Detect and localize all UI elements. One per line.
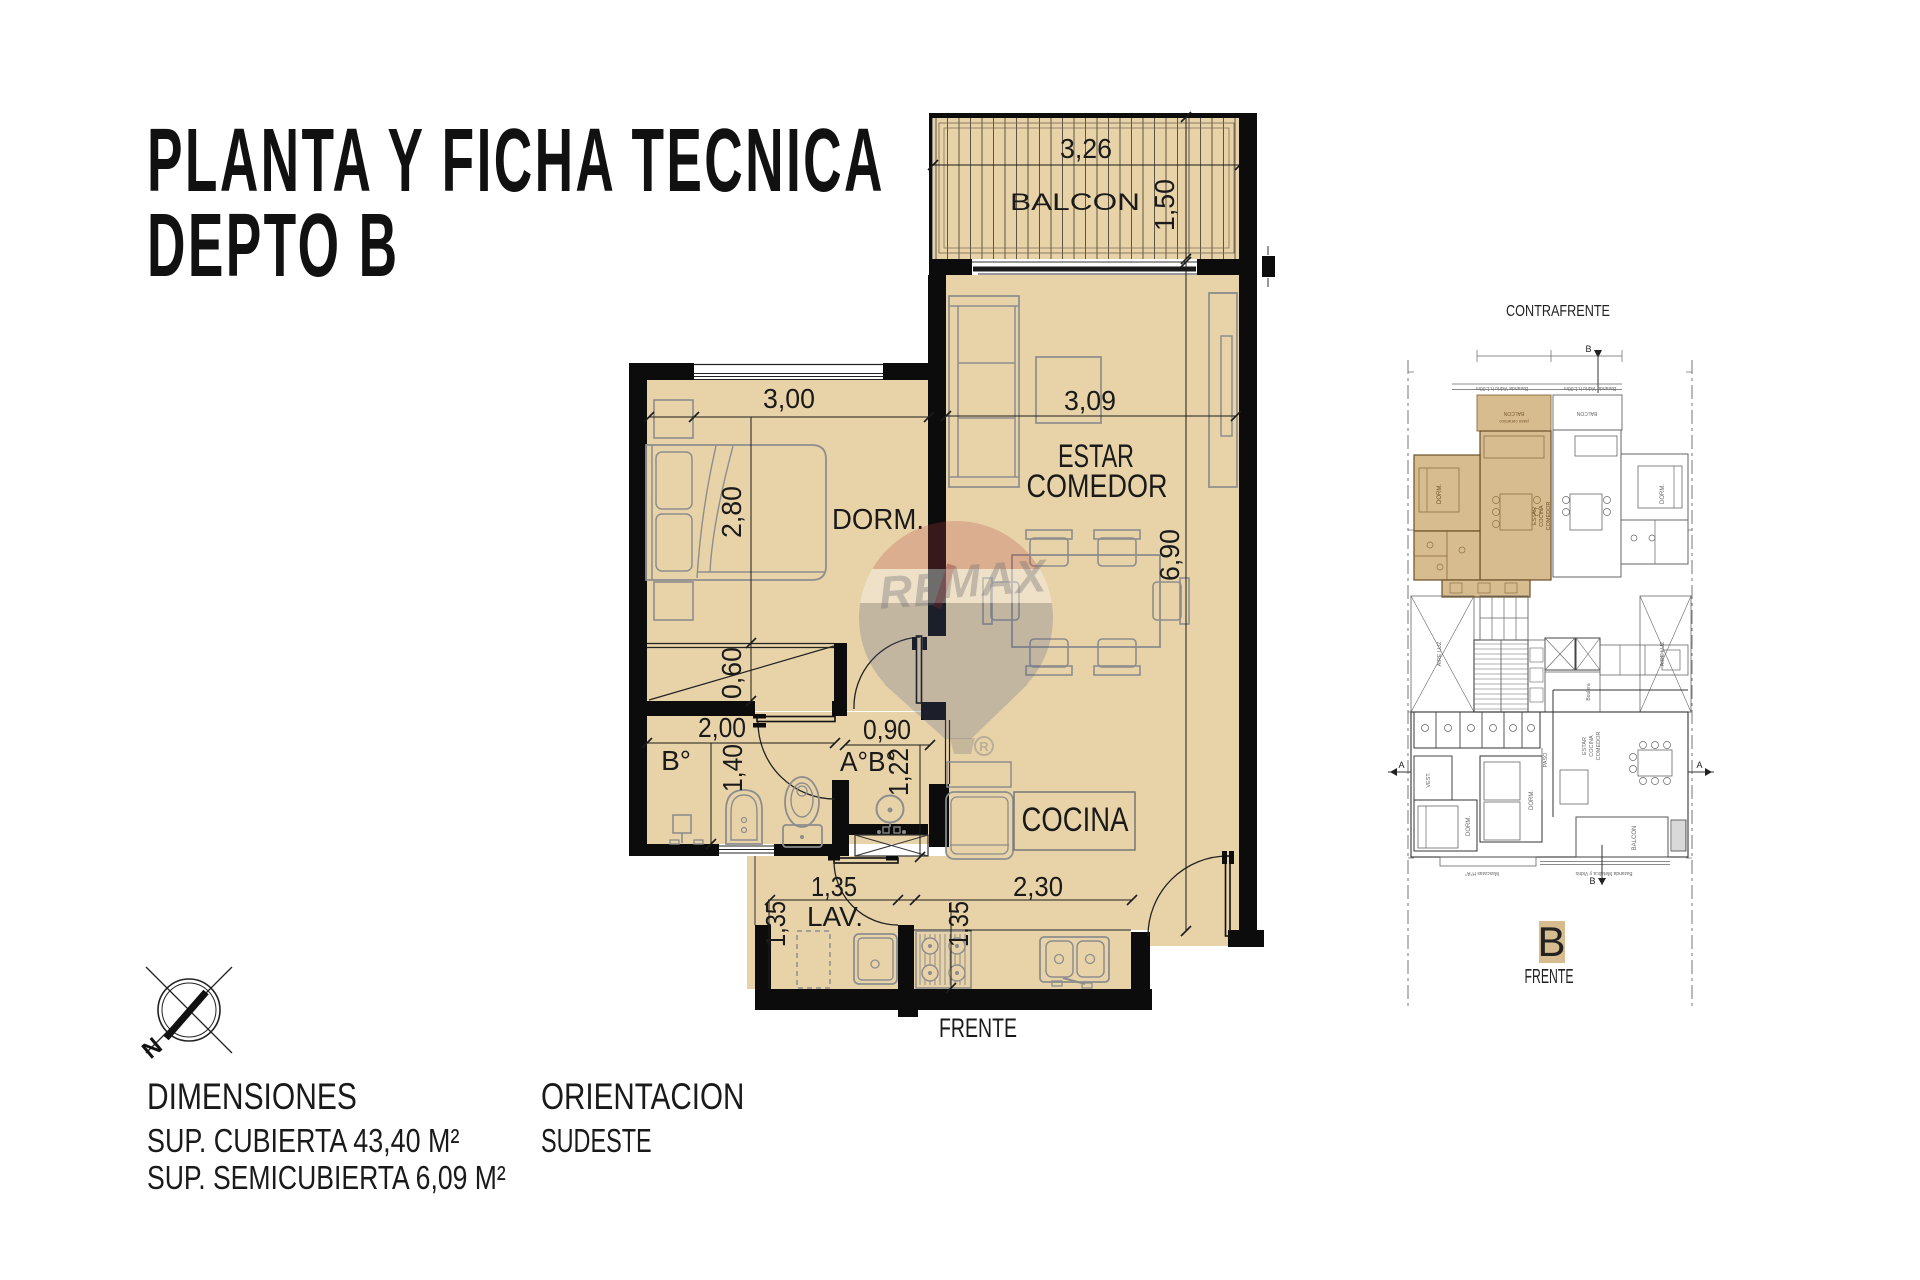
svg-text:N: N [137,1032,168,1064]
svg-text:Boulera: Boulera [1586,683,1592,700]
svg-text:B: B [1537,918,1566,965]
svg-text:DORM.: DORM. [1660,484,1666,504]
svg-text:paso ceramico: paso ceramico [1499,419,1529,424]
svg-text:1,35: 1,35 [760,901,791,947]
svg-text:Baranda Vidrio h.1.00m: Baranda Vidrio h.1.00m [1564,385,1616,391]
svg-text:FRENTE: FRENTE [1525,966,1574,988]
svg-text:VEST.: VEST. [1426,772,1432,788]
svg-text:3,09: 3,09 [1064,385,1116,416]
svg-text:3,00: 3,00 [763,383,815,414]
svg-text:RE: RE [877,562,947,618]
svg-text:B: B [1585,344,1592,354]
svg-text:ESTAR: ESTAR [1532,507,1538,525]
svg-text:A°B°: A°B° [840,746,896,777]
svg-text:PASO: PASO [1543,752,1549,768]
svg-text:BALCON: BALCON [1010,189,1140,216]
svg-text:Baranda Metalica y Vidrio: Baranda Metalica y Vidrio [1575,870,1632,876]
svg-text:COCINA: COCINA [1589,735,1595,757]
svg-text:1,50: 1,50 [1149,179,1180,231]
svg-text:COMEDOR: COMEDOR [1546,502,1552,531]
svg-text:B°: B° [661,745,691,776]
svg-text:Mascaras H°A°: Mascaras H°A° [1465,870,1499,876]
svg-text:2,00: 2,00 [698,712,746,743]
svg-text:Baranda Vidrio h.1.00m: Baranda Vidrio h.1.00m [1476,385,1528,391]
svg-text:BALCON: BALCON [1503,410,1524,416]
svg-text:COMEDOR: COMEDOR [1596,732,1602,761]
svg-text:AIRE LUZ: AIRE LUZ [1437,641,1443,666]
svg-text:COCINA: COCINA [1022,801,1129,839]
svg-text:3,26: 3,26 [1060,133,1112,164]
svg-text:FRENTE: FRENTE [939,1013,1017,1043]
svg-text:DORM.: DORM. [1529,790,1535,810]
svg-text:B: B [1589,876,1596,886]
svg-text:BALCON: BALCON [1576,410,1597,416]
svg-text:1,40: 1,40 [717,744,748,792]
svg-text:1,35: 1,35 [943,901,974,947]
svg-text:2,80: 2,80 [716,486,747,538]
svg-text:COCINA: COCINA [1539,505,1545,527]
svg-text:2,30: 2,30 [1013,871,1063,902]
svg-text:A: A [1398,760,1405,770]
svg-text:DORM.: DORM. [1437,484,1443,504]
svg-text:DORM.: DORM. [1466,816,1472,836]
svg-text:0,60: 0,60 [716,647,747,699]
svg-text:ESTAR: ESTAR [1582,737,1588,755]
svg-text:BALCON: BALCON [1632,826,1638,851]
svg-text:COMEDOR: COMEDOR [1027,468,1168,504]
svg-text:R: R [979,739,989,754]
svg-text:0,90: 0,90 [863,714,911,745]
svg-text:1,35: 1,35 [811,871,857,902]
svg-text:A: A [1696,760,1703,770]
svg-text:MAX: MAX [940,549,1050,608]
svg-text:DORM.: DORM. [832,504,924,536]
svg-text:CONTRAFRENTE: CONTRAFRENTE [1506,303,1610,320]
svg-text:6,90: 6,90 [1154,529,1185,581]
svg-text:LAV.: LAV. [807,901,863,932]
